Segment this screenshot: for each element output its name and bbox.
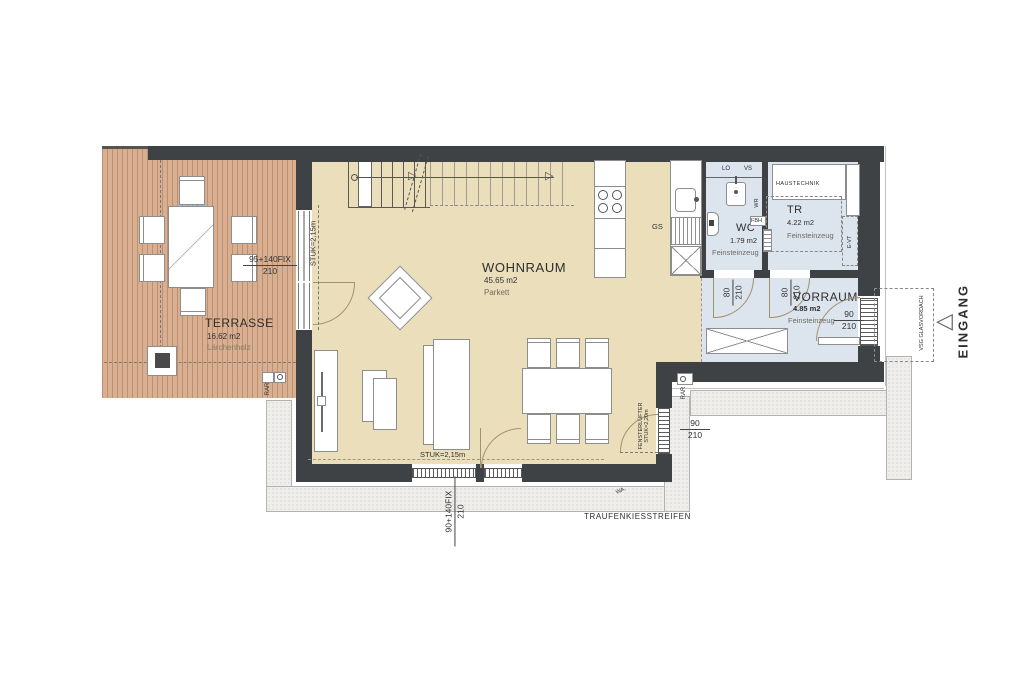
entrance-arrow: ◁ [936,310,953,332]
stair-arrow: ▷ [545,171,553,182]
vent-window [658,408,670,454]
dining-chair [585,338,609,368]
terrace-edge-top [102,146,148,149]
room-title-wohnraum: WOHNRAUM [482,260,566,275]
kitchen-island-joint [595,186,625,187]
dining-chair [527,338,551,368]
stair-arrow: ▷ [408,171,416,182]
east-wall-niche [846,164,860,216]
wall-west-upper [296,162,312,210]
wall-south-left-b [522,464,672,482]
washbasin [726,182,746,206]
kitchen-island-joint [595,218,625,219]
cooktop-burner [598,190,608,200]
dining-table [522,368,612,414]
rar-label-east: RAR [681,383,687,403]
lintel-line-west [318,205,319,330]
stair-walk-start [351,174,358,181]
terrace-chair [180,288,206,316]
terrace-door-dimension: 95+140FIX210 [243,254,297,277]
entry-door-dimension: 90210 [834,309,864,332]
terrace-chair [179,176,205,205]
vent-window-lintel: STUK=2,20m [644,391,650,461]
room-finish-terrasse: Lärchenholz [207,343,251,352]
kitchen-sink [675,188,696,212]
gravel-strip-east [886,356,912,480]
room-finish-tr: Feinsteinzeug [787,231,834,240]
cooktop-burner [612,203,622,213]
south-door-leaf [480,428,481,468]
lintel-label-west: STUK=2,15m [309,215,318,273]
evt-label: E-VT [847,227,853,257]
wr-label: WR [754,195,760,211]
toilet-cistern [709,220,714,226]
wall-vorraum-north-c [810,270,858,278]
room-finish-wohnraum: Parkett [484,288,509,297]
terrace-chair [139,216,165,244]
lintel-label-south: STUK=2,15m [420,450,465,459]
vent-window-dimension: 90210 [680,418,710,441]
shaft-label-vs: VS [744,166,752,172]
terrace-planter-core [155,353,170,368]
shaft-label-lo: LO [722,166,730,172]
dining-chair [585,414,609,444]
dishwasher [671,217,701,245]
gravel-strip-label: TRAUFENKIESSTREIFEN [584,512,691,521]
wall-step-lower [656,454,672,482]
room-finish-wc: Feinsteinzeug [712,248,759,257]
wall-east-upper [858,162,880,296]
radiator [763,229,772,252]
floor-joint-line [701,278,702,362]
fbh-label: FBH [751,218,762,224]
vent-window-labels: FENSTERLÜFTER STUK=2,20m [638,391,650,461]
dishwasher-label: GS [652,222,663,231]
wc-shaft-line [706,177,762,178]
room-area-vorraum: 4.85 m2 [793,304,821,313]
wall-vorraum-north-a [700,270,714,278]
tv-mount [317,396,326,406]
gravel-strip-southeast [690,390,912,416]
glass-canopy-label: VSG GLASVORDACH [919,281,925,365]
kitchen-island-joint [595,248,625,249]
kitchen-island [594,160,626,278]
roof-overhang-line-horizontal [104,362,296,363]
south-door-dimension: 90+140FIX210 [443,477,466,547]
wardrobe [706,328,788,354]
entry-door-leaf [818,337,860,345]
terrace-table [168,206,214,288]
dining-chair [556,414,580,444]
dining-chair [527,414,551,444]
stair-stringer [358,162,372,207]
wall-vorraum-north-b [754,270,770,278]
cooktop-burner [598,203,608,213]
sofa-backrest [433,339,470,450]
terrace-privacy-wall [148,146,296,160]
wall-south-left-a [296,464,412,482]
cooktop-burner [612,190,622,200]
room-area-terrasse: 16.62 m2 [207,332,240,341]
rar-marker-dot [680,376,686,382]
washbasin-drain [734,190,738,194]
room-title-terrasse: TERRASSE [205,316,274,330]
coffee-table [373,378,397,430]
lintel-line-south [308,459,604,460]
rar-marker-dot [277,374,283,380]
rar-label-terrace: RAR [265,379,271,399]
wall-north [296,146,884,162]
kitchen-faucet [694,197,699,202]
washbasin-tap [735,176,737,184]
glass-canopy-outline [874,288,934,362]
floor-plan: TRAUFENKIESSTREIFEN WA. TERRASSE 16.62 m… [0,0,1024,683]
room-area-wohnraum: 45.65 m2 [484,276,517,285]
terrace-door-leaf [313,282,355,283]
stair-walk-line [356,177,554,178]
terrace-chair [231,216,257,244]
dining-chair [556,338,580,368]
wc-door-dimension: 80210 [721,280,744,306]
terrace-chair [139,254,165,282]
room-area-tr: 4.22 m2 [787,218,814,227]
kitchen-appliance [671,246,701,275]
entrance-label: EINGANG [956,285,971,359]
west-fixed-window [298,283,310,329]
room-area-wc: 1.79 m2 [730,236,757,245]
stair-flight-upper [430,162,574,206]
wc-door-leaf [713,278,714,318]
haustechnik-label: HAUSTECHNIK [776,181,820,187]
tr-door-leaf [769,278,770,318]
room-title-tr: TR [787,204,802,216]
south-door-sill [484,468,522,478]
